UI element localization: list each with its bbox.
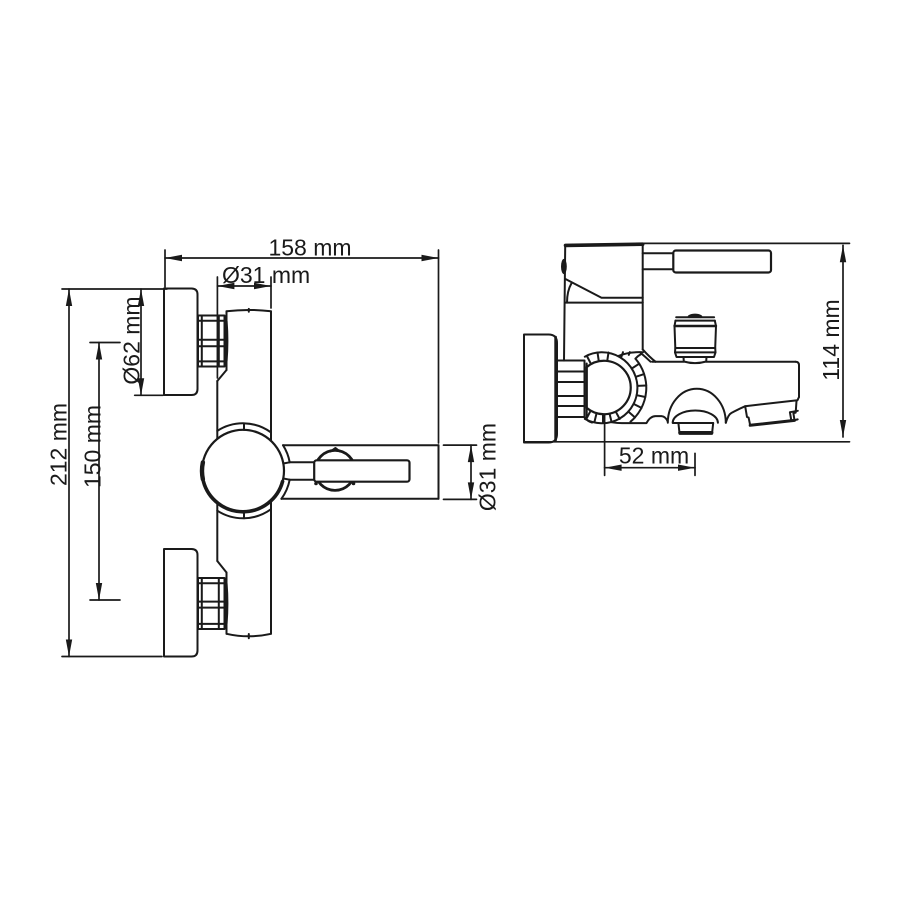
svg-text:114 mm: 114 mm xyxy=(818,299,844,380)
svg-text:Ø31 mm: Ø31 mm xyxy=(475,423,501,511)
svg-text:212 mm: 212 mm xyxy=(46,403,72,486)
svg-text:Ø62 mm: Ø62 mm xyxy=(119,296,145,384)
svg-text:150 mm: 150 mm xyxy=(80,405,106,488)
svg-text:52 mm: 52 mm xyxy=(619,443,689,469)
svg-text:158 mm: 158 mm xyxy=(268,235,351,261)
svg-text:Ø31 mm: Ø31 mm xyxy=(222,262,310,288)
